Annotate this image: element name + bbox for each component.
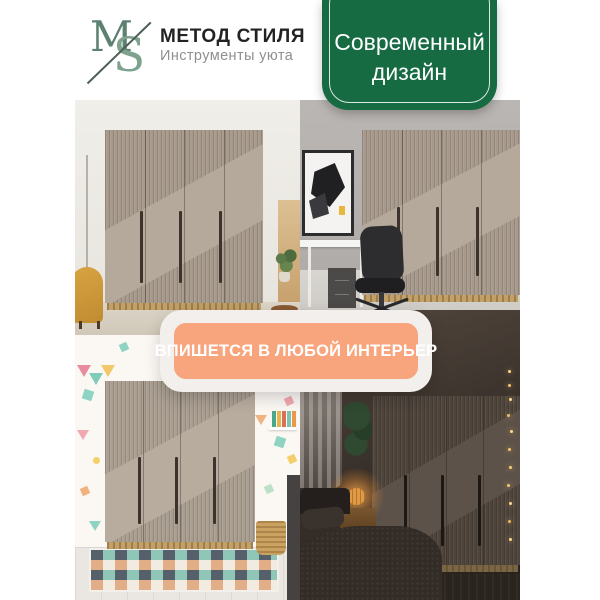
book — [272, 411, 276, 427]
design-badge: Современный дизайн — [322, 0, 497, 110]
door-handle — [140, 211, 143, 283]
door-handle — [175, 457, 178, 524]
door-seam — [184, 130, 185, 303]
wardrobe — [105, 130, 263, 310]
armchair-leg — [79, 321, 82, 329]
door-handle — [179, 211, 182, 283]
logo-letter-s: S — [113, 32, 145, 79]
door-seam — [483, 396, 484, 565]
door-handle — [436, 207, 439, 276]
potted-plant — [272, 246, 298, 274]
confetti-shape — [93, 457, 100, 464]
door-handle — [441, 475, 444, 545]
badge-line2: дизайн — [372, 58, 447, 88]
door-seam — [224, 130, 225, 303]
book — [292, 411, 296, 427]
door-seam — [145, 130, 146, 303]
promo-card: M S МЕТОД СТИЛЯ Инструменты уюта Совреме… — [0, 0, 600, 600]
book — [277, 411, 281, 427]
confetti-shape — [80, 486, 91, 497]
door-seam — [180, 381, 181, 542]
rattan-lamp — [348, 488, 365, 505]
garland-flag — [101, 365, 115, 377]
wardrobe-plinth — [107, 542, 253, 549]
triangle-pattern-rug — [89, 548, 279, 592]
door-handle — [219, 211, 222, 283]
book — [287, 411, 291, 427]
wall-shelf — [269, 427, 296, 430]
plant-pot — [279, 272, 290, 282]
confetti-shape — [287, 454, 298, 465]
chair-backrest — [360, 225, 405, 283]
door-handle — [478, 475, 481, 545]
armchair-leg — [97, 321, 100, 329]
confetti-shape — [82, 389, 95, 402]
wardrobe-plinth — [107, 303, 261, 310]
confetti-shape — [89, 521, 101, 531]
badge-line1: Современный — [334, 28, 485, 58]
fairy-lights — [508, 370, 511, 373]
confetti-shape — [255, 415, 267, 425]
door-seam — [481, 130, 482, 295]
door-handle — [476, 207, 479, 276]
office-chair — [352, 226, 416, 310]
wardrobe — [105, 381, 255, 549]
brand-name: МЕТОД СТИЛЯ — [160, 26, 305, 48]
wicker-basket — [256, 521, 286, 555]
door-seam — [143, 381, 144, 542]
art-accent — [339, 206, 345, 215]
banner-text: ВПИШЕТСЯ В ЛЮБОЙ ИНТЕРЬЕР — [155, 342, 438, 361]
door-handle — [138, 457, 141, 524]
photo-office — [300, 100, 520, 310]
brand-logo-icon: M S — [86, 16, 158, 94]
confetti-shape — [274, 436, 287, 449]
yellow-armchair — [75, 267, 103, 323]
book — [282, 411, 286, 427]
abstract-art-frame — [302, 150, 354, 236]
confetti-shape — [264, 484, 275, 495]
hanging-plant — [344, 402, 374, 458]
confetti-shape — [119, 342, 130, 353]
confetti-shape — [284, 396, 295, 407]
door-seam — [218, 381, 219, 542]
chair-seat — [355, 278, 405, 293]
fits-any-interior-banner: ВПИШЕТСЯ В ЛЮБОЙ ИНТЕРЬЕР — [160, 310, 432, 392]
confetti-shape — [77, 430, 89, 440]
banner-pill: ВПИШЕТСЯ В ЛЮБОЙ ИНТЕРЬЕР — [174, 323, 418, 379]
badge-text: Современный дизайн — [322, 0, 497, 110]
desk-leg — [308, 247, 311, 307]
bed-blanket — [300, 526, 442, 600]
bed-pillow — [301, 506, 345, 530]
photo-living-room — [75, 100, 300, 335]
brand-tagline: Инструменты уюта — [160, 48, 293, 64]
door-seam — [441, 130, 442, 295]
door-seam — [446, 396, 447, 565]
dark-furniture-edge — [287, 475, 300, 600]
chair-post — [379, 292, 384, 307]
door-handle — [213, 457, 216, 524]
